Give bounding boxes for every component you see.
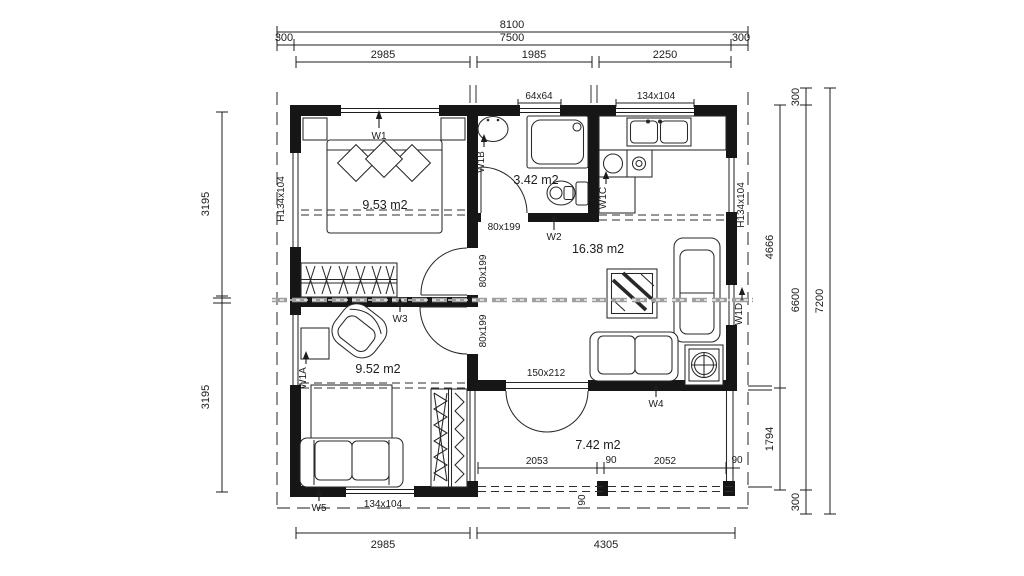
wardrobe-vertical <box>431 389 467 487</box>
dim-7500: 7500 <box>500 32 524 44</box>
dim-300-bottom-right: 300 <box>790 493 802 511</box>
dim-90-a: 90 <box>605 455 617 466</box>
dim-chain-right: 4666 1794 300 6600 300 7200 <box>764 88 836 514</box>
dim-4305: 4305 <box>594 539 618 551</box>
floor-plan-drawing: 8100 300 7500 300 2985 1985 2250 2985 43… <box>0 0 1024 576</box>
label-w4: W4 <box>649 399 664 410</box>
label-window-left: H134x104 <box>276 176 287 222</box>
double-bed <box>327 140 442 233</box>
room-label-bedroom1: 9.53 m2 <box>362 198 407 212</box>
label-door-terrace: 150x212 <box>527 368 566 379</box>
room-label-terrace: 7.42 m2 <box>575 438 620 452</box>
dim-chain-top: 8100 300 7500 300 2985 1985 2250 <box>275 19 750 68</box>
dim-3195-upper: 3195 <box>200 192 212 216</box>
label-w3: W3 <box>393 314 408 325</box>
label-window-right: H134x104 <box>736 182 747 228</box>
armchair <box>326 297 394 364</box>
dim-1985: 1985 <box>522 49 546 61</box>
sofa-bed <box>300 385 403 487</box>
dim-2053: 2053 <box>526 456 549 467</box>
dim-2985-top: 2985 <box>371 49 395 61</box>
interior-door-lower <box>420 307 467 354</box>
room-label-living: 16.38 m2 <box>572 242 624 256</box>
nightstand-right <box>441 118 465 140</box>
dim-90-c: 90 <box>577 494 588 506</box>
terrace-posts <box>465 481 735 496</box>
label-w5: W5 <box>312 503 327 514</box>
nightstand-left <box>303 118 327 140</box>
label-w1c: W1C <box>598 187 609 209</box>
room-label-bathroom: 3.42 m2 <box>513 173 558 187</box>
label-door-lower: 80x199 <box>478 314 489 347</box>
dim-300-top-right: 300 <box>790 88 802 106</box>
dim-300-left: 300 <box>275 32 293 44</box>
terrace-double-door <box>506 383 588 433</box>
dim-7200: 7200 <box>814 289 826 313</box>
dim-8100: 8100 <box>500 19 524 31</box>
floor-plan-canvas: 8100 300 7500 300 2985 1985 2250 2985 43… <box>0 0 1024 576</box>
bathroom-fixtures <box>478 116 588 205</box>
dim-4666: 4666 <box>764 235 776 259</box>
dim-3195-lower: 3195 <box>200 385 212 409</box>
room-label-bedroom2: 9.52 m2 <box>355 362 400 376</box>
dim-2250: 2250 <box>653 49 677 61</box>
window-left-symbol <box>290 153 301 247</box>
label-w1b: W1B <box>476 151 487 173</box>
label-door-bath: 80x199 <box>488 222 521 233</box>
dining-table <box>607 269 657 318</box>
stove-table <box>685 345 723 385</box>
dim-90-b: 90 <box>731 455 743 466</box>
label-window-bottom: 134x104 <box>364 499 403 510</box>
dim-300-right: 300 <box>732 32 750 44</box>
dim-6600: 6600 <box>790 288 802 312</box>
label-w1a: W1A <box>298 367 309 389</box>
dim-chain-left: 3195 3195 <box>200 112 228 492</box>
interior-door-upper <box>421 248 467 295</box>
kitchen-fixtures <box>599 116 726 213</box>
label-w1: W1 <box>372 131 387 142</box>
shower-cabin <box>527 116 588 168</box>
label-door-upper: 80x199 <box>478 254 489 287</box>
dim-1794: 1794 <box>764 427 776 451</box>
window-kitchen-symbol <box>616 105 694 116</box>
window-bottom-symbol <box>342 486 418 497</box>
label-w2: W2 <box>547 232 562 243</box>
dim-chain-terrace: 2053 90 2052 90 90 <box>478 455 743 506</box>
dim-2985-bottom: 2985 <box>371 539 395 551</box>
kitchen-sink <box>627 118 691 146</box>
label-window-kitchen: 134x104 <box>637 91 676 102</box>
living-furniture <box>590 238 723 385</box>
dim-chain-bottom: 2985 4305 <box>296 527 735 551</box>
label-window-64x64: 64x64 <box>525 91 553 102</box>
bedroom2-furniture <box>300 297 467 487</box>
label-w1d: W1D <box>734 303 745 325</box>
wardrobe-hangers <box>301 263 397 297</box>
window-w1-symbol <box>337 105 443 116</box>
window-bath-symbol <box>520 105 560 116</box>
dim-2052: 2052 <box>654 456 677 467</box>
